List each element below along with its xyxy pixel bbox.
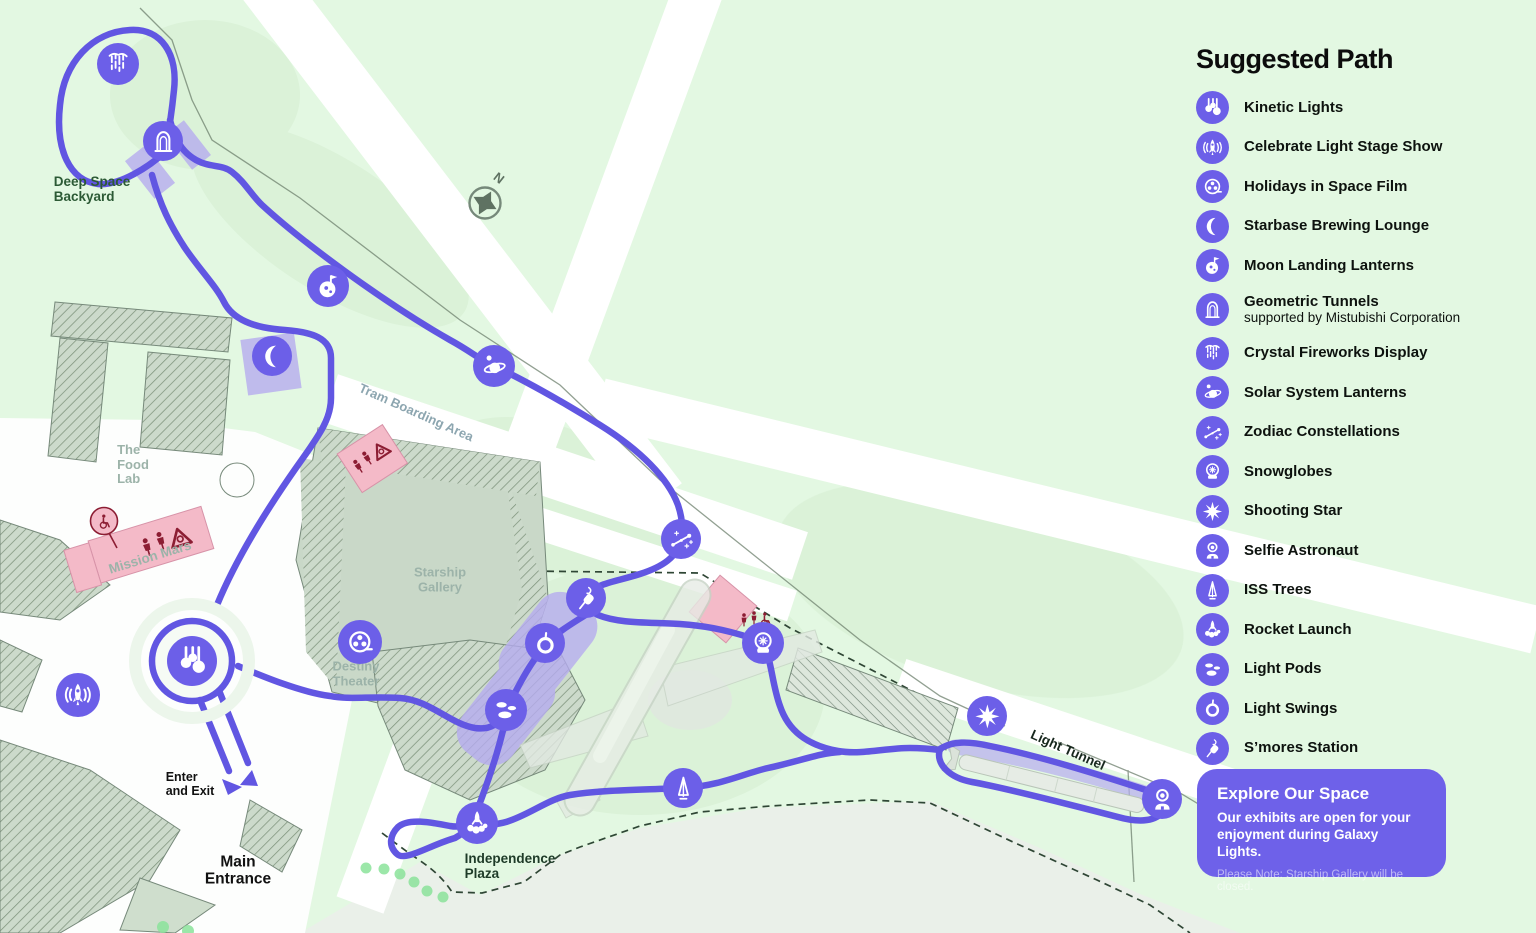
swing-icon	[531, 629, 560, 658]
star8-icon	[1201, 500, 1224, 523]
legend-label: Starbase Brewing Lounge	[1244, 218, 1429, 234]
legend-label: Moon Landing Lanterns	[1244, 258, 1414, 274]
pods-icon-badge	[1196, 653, 1229, 686]
poi-snowglobes	[742, 622, 784, 664]
legend-item-shooting-star: Shooting Star	[1196, 495, 1526, 529]
moonflag-icon	[1201, 254, 1224, 277]
rocketlaunch-icon	[1201, 618, 1224, 641]
poi-solar-system-lanterns	[473, 345, 515, 387]
fireworks-icon	[1201, 342, 1224, 365]
galaxy-lights-map: N Deep Space BackyardThe Food LabMission…	[0, 0, 1536, 933]
notice-title: Explore Our Space	[1217, 784, 1426, 804]
legend-label: S’mores Station	[1244, 740, 1358, 756]
poi-geometric-tunnels	[143, 121, 183, 161]
legend-item-solar-system-lanterns: Solar System Lanterns	[1196, 376, 1526, 410]
rocketlaunch-icon-badge	[1196, 613, 1229, 646]
poi-moon-landing-lanterns	[307, 265, 349, 307]
legend-items: Kinetic LightsCelebrate Light Stage Show…	[1196, 91, 1526, 765]
legend-item-snowglobes: Snowglobes	[1196, 455, 1526, 489]
film-icon-badge	[1196, 170, 1229, 203]
poi-smores-station	[566, 578, 606, 618]
stage-icon	[62, 679, 94, 711]
tunnel-icon-badge	[1196, 293, 1229, 326]
moonflag-icon-badge	[1196, 249, 1229, 282]
poi-crystal-fireworks-display	[97, 43, 139, 85]
poi-light-swings	[525, 623, 565, 663]
saturn-icon	[1201, 381, 1224, 404]
legend-label: Geometric Tunnels	[1244, 294, 1460, 310]
legend-label: Celebrate Light Stage Show	[1244, 139, 1442, 155]
kinetic-icon	[1201, 96, 1224, 119]
film-icon	[344, 626, 376, 658]
legend-label: ISS Trees	[1244, 582, 1312, 598]
poi-shooting-star	[967, 696, 1007, 736]
legend-item-s-mores-station: S’mores Station	[1196, 732, 1526, 766]
snowglobe-icon	[1201, 460, 1224, 483]
snowglobe-icon-badge	[1196, 455, 1229, 488]
legend-item-holidays-in-space-film: Holidays in Space Film	[1196, 170, 1526, 204]
legend-item-celebrate-light-stage-show: Celebrate Light Stage Show	[1196, 131, 1526, 165]
legend-label: Light Pods	[1244, 661, 1322, 677]
legend-label: Solar System Lanterns	[1244, 385, 1407, 401]
film-icon	[1201, 175, 1224, 198]
star8-icon	[973, 702, 1002, 731]
isstree-icon-badge	[1196, 574, 1229, 607]
legend-item-moon-landing-lanterns: Moon Landing Lanterns	[1196, 249, 1526, 283]
poi-holidays-in-space-film	[338, 620, 382, 664]
swing-icon-badge	[1196, 692, 1229, 725]
star8-icon-badge	[1196, 495, 1229, 528]
astronaut-icon	[1148, 785, 1177, 814]
moon-icon	[1201, 215, 1224, 238]
moonflag-icon	[313, 271, 343, 301]
saturn-icon	[479, 351, 509, 381]
poi-kinetic-lights	[167, 636, 217, 686]
explore-our-space-notice: Explore Our Space Our exhibits are open …	[1197, 769, 1446, 877]
legend-label: Snowglobes	[1244, 464, 1332, 480]
legend-item-crystal-fireworks-display: Crystal Fireworks Display	[1196, 337, 1526, 371]
notice-note: Please Note: Starship Gallery will be cl…	[1217, 869, 1426, 893]
pods-icon	[491, 695, 521, 725]
legend-title: Suggested Path	[1196, 44, 1526, 75]
fireworks-icon	[103, 49, 133, 79]
astronaut-icon	[1201, 539, 1224, 562]
poi-rocket-launch	[456, 802, 498, 844]
tunnel-icon	[149, 127, 178, 156]
legend-label: Kinetic Lights	[1244, 100, 1343, 116]
legend-item-selfie-astronaut: Selfie Astronaut	[1196, 534, 1526, 568]
astronaut-icon-badge	[1196, 534, 1229, 567]
poi-starbase-brewing-lounge	[252, 336, 292, 376]
moon-icon	[258, 342, 287, 371]
saturn-icon-badge	[1196, 376, 1229, 409]
legend-label: Holidays in Space Film	[1244, 179, 1407, 195]
legend-sublabel: supported by Mistubishi Corporation	[1244, 310, 1460, 326]
kinetic-icon-badge	[1196, 91, 1229, 124]
legend-item-starbase-brewing-lounge: Starbase Brewing Lounge	[1196, 210, 1526, 244]
zodiac-icon	[667, 525, 696, 554]
pods-icon	[1201, 658, 1224, 681]
swing-icon	[1201, 697, 1224, 720]
stage-icon-badge	[1196, 131, 1229, 164]
poi-light-pods	[485, 689, 527, 731]
poi-iss-trees	[663, 768, 703, 808]
legend-item-iss-trees: ISS Trees	[1196, 574, 1526, 608]
legend-item-light-pods: Light Pods	[1196, 653, 1526, 687]
legend-label: Shooting Star	[1244, 503, 1342, 519]
legend-label: Rocket Launch	[1244, 622, 1352, 638]
moon-icon-badge	[1196, 210, 1229, 243]
stage-icon	[1201, 136, 1224, 159]
smores-icon	[1201, 737, 1224, 760]
poi-celebrate-light-stage-show	[56, 673, 100, 717]
legend-item-geometric-tunnels: Geometric Tunnelssupported by Mistubishi…	[1196, 289, 1526, 331]
suggested-path-legend: Suggested Path Kinetic LightsCelebrate L…	[1196, 44, 1526, 771]
legend-label: Light Swings	[1244, 701, 1337, 717]
legend-label: Zodiac Constellations	[1244, 424, 1400, 440]
zodiac-icon	[1201, 421, 1224, 444]
smores-icon-badge	[1196, 732, 1229, 765]
snowglobe-icon	[748, 628, 778, 658]
legend-item-zodiac-constellations: Zodiac Constellations	[1196, 416, 1526, 450]
poi-selfie-astronaut	[1142, 779, 1182, 819]
poi-zodiac-constellations	[661, 519, 701, 559]
kinetic-icon	[174, 643, 210, 679]
legend-item-rocket-launch: Rocket Launch	[1196, 613, 1526, 647]
smores-icon	[572, 584, 601, 613]
zodiac-icon-badge	[1196, 416, 1229, 449]
legend-label: Crystal Fireworks Display	[1244, 345, 1427, 361]
isstree-icon	[1201, 579, 1224, 602]
tunnel-icon	[1201, 298, 1224, 321]
notice-body: Our exhibits are open for your enjoyment…	[1217, 810, 1426, 861]
legend-item-kinetic-lights: Kinetic Lights	[1196, 91, 1526, 125]
legend-label: Selfie Astronaut	[1244, 543, 1358, 559]
isstree-icon	[669, 774, 698, 803]
fireworks-icon-badge	[1196, 337, 1229, 370]
legend-item-light-swings: Light Swings	[1196, 692, 1526, 726]
rocketlaunch-icon	[462, 808, 492, 838]
